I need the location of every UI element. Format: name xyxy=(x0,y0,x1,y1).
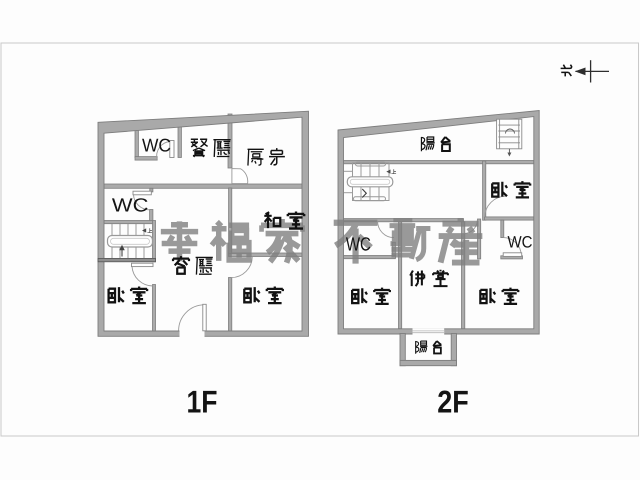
svg-text:WC: WC xyxy=(142,134,171,155)
svg-text:1F: 1F xyxy=(187,383,218,419)
svg-text:WC: WC xyxy=(112,196,148,217)
svg-text:WC: WC xyxy=(346,234,371,255)
svg-text:WC: WC xyxy=(508,233,533,251)
svg-text:2F: 2F xyxy=(437,383,469,419)
